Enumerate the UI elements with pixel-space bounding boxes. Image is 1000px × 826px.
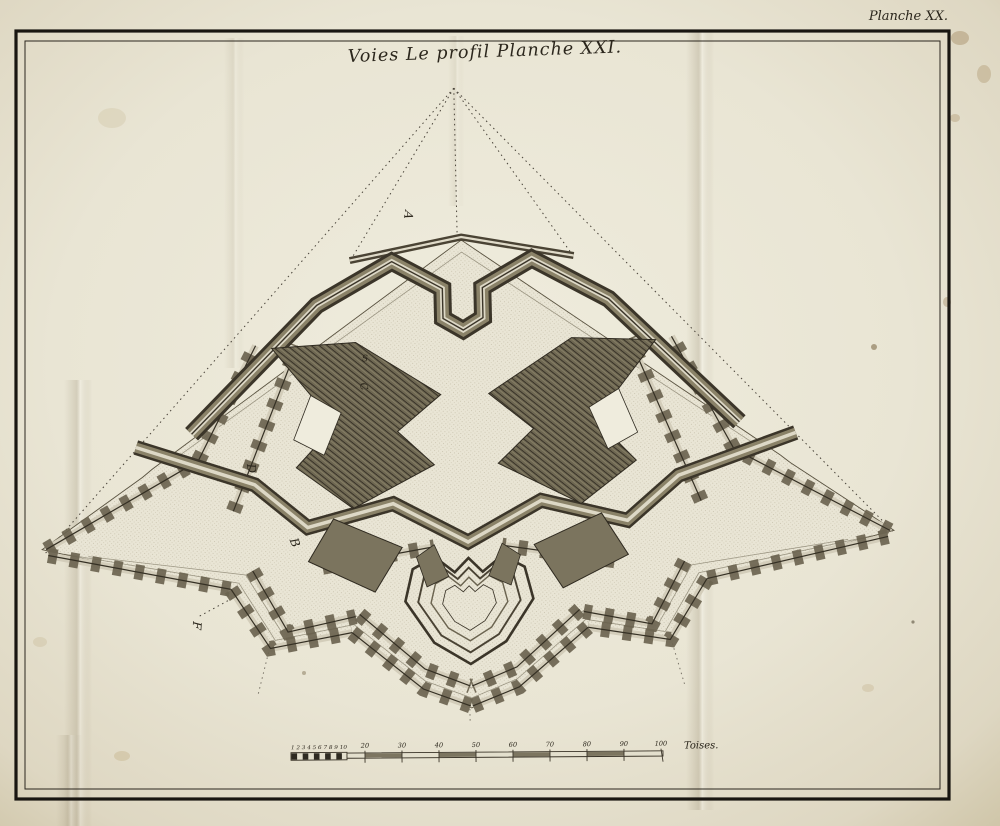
letter-S: S [362,354,368,364]
svg-text:90: 90 [620,740,628,748]
fortification-plate: Planche XX. Voies Le profil Planche XXI. [0,0,1000,826]
svg-text:20: 20 [360,742,369,750]
svg-text:30: 30 [398,741,406,749]
scale-subdivision-digits: 1 2 3 4 5 6 7 8 9 10 [291,745,348,751]
engraved-plate-photo: Planche XX. Voies Le profil Planche XXI. [0,0,1000,826]
plate-number-label: Planche XX. [868,9,948,24]
scale-checker-section [291,752,347,760]
svg-text:40: 40 [434,741,443,749]
scale-unit-label: Toises. [684,740,719,751]
svg-text:80: 80 [583,740,591,748]
svg-text:70: 70 [546,740,554,748]
letter-F: F [190,620,205,631]
svg-text:100: 100 [655,740,667,748]
svg-text:60: 60 [509,741,517,749]
svg-text:50: 50 [472,741,480,749]
letter-D: D [244,462,259,474]
